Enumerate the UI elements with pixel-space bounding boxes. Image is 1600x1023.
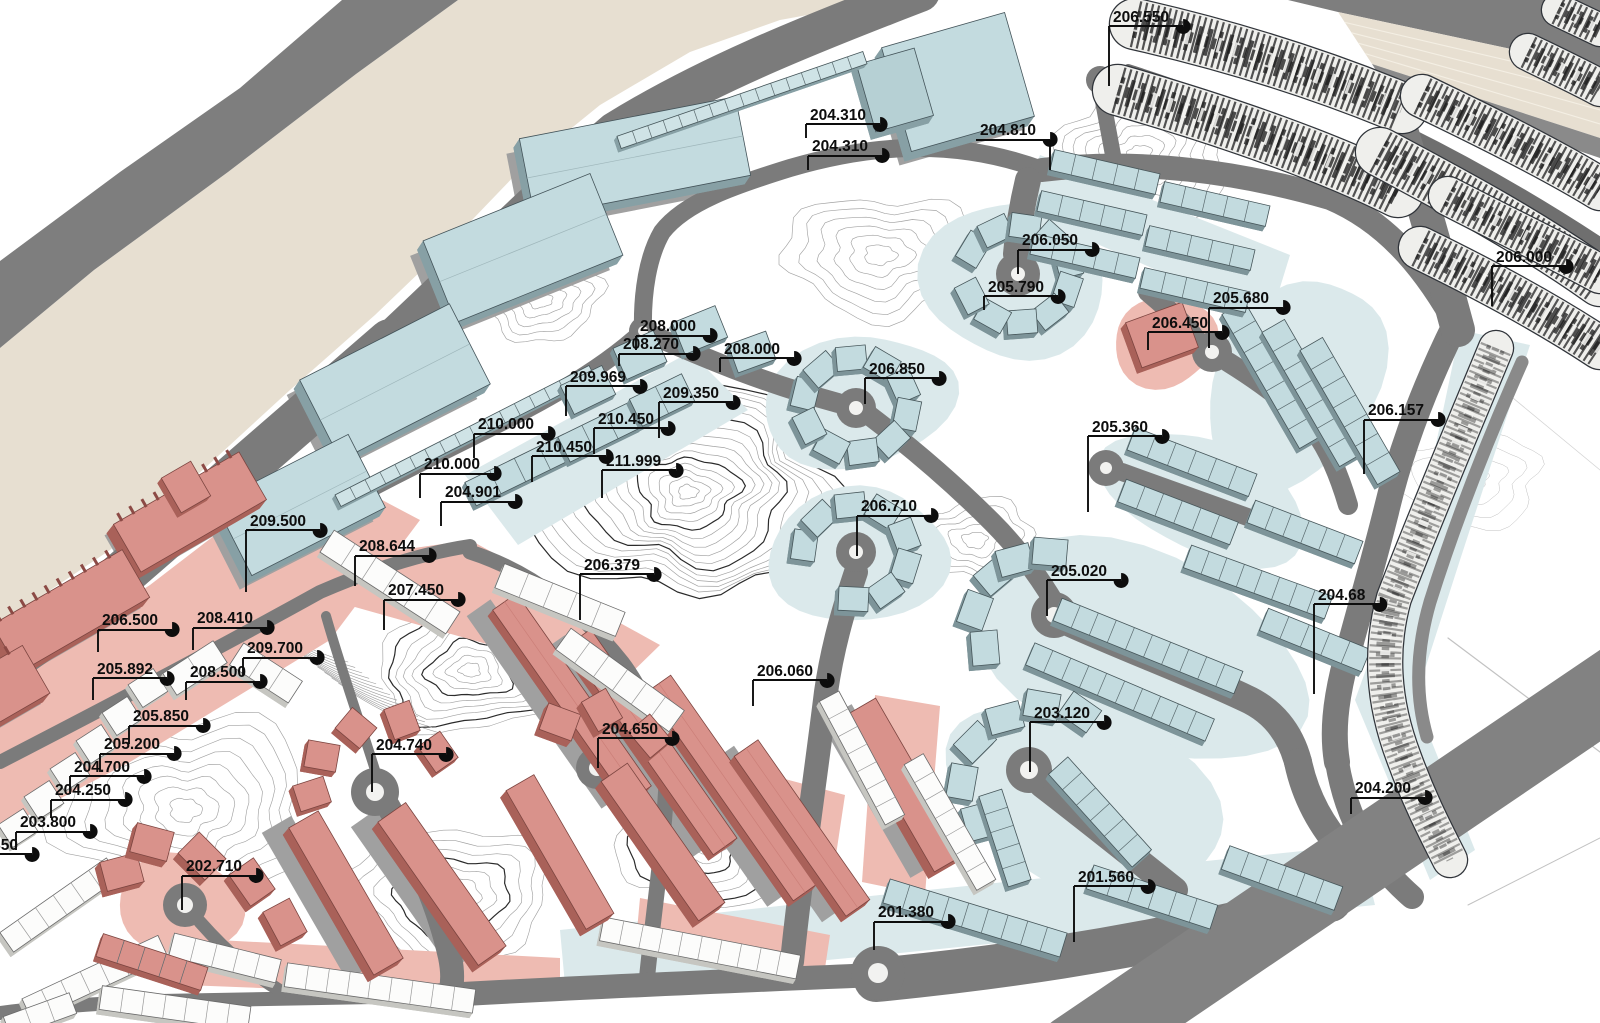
- svg-text:208.644: 208.644: [359, 538, 415, 555]
- svg-text:205.680: 205.680: [1213, 290, 1269, 307]
- svg-text:211.999: 211.999: [606, 453, 662, 470]
- svg-text:202.710: 202.710: [186, 858, 242, 875]
- svg-text:205.200: 205.200: [104, 736, 160, 753]
- svg-text:204.310: 204.310: [812, 138, 868, 155]
- svg-text:208.410: 208.410: [197, 610, 253, 627]
- svg-text:204.901: 204.901: [445, 484, 501, 501]
- svg-text:201.560: 201.560: [1078, 869, 1134, 886]
- svg-text:208.500: 208.500: [190, 664, 246, 681]
- svg-text:210.000: 210.000: [478, 416, 534, 433]
- svg-text:204.740: 204.740: [376, 737, 432, 754]
- svg-text:206.850: 206.850: [869, 361, 925, 378]
- svg-text:206.050: 206.050: [1022, 232, 1078, 249]
- svg-text:203.800: 203.800: [20, 814, 76, 831]
- svg-text:204.68: 204.68: [1318, 587, 1366, 604]
- svg-text:206.000: 206.000: [1496, 249, 1552, 266]
- svg-text:206.550: 206.550: [1113, 9, 1169, 26]
- svg-text:207.450: 207.450: [388, 582, 444, 599]
- svg-text:204.200: 204.200: [1355, 780, 1411, 797]
- svg-text:206.379: 206.379: [584, 557, 640, 574]
- svg-text:203.120: 203.120: [1034, 705, 1090, 722]
- svg-text:204.650: 204.650: [602, 721, 658, 738]
- svg-text:205.360: 205.360: [1092, 419, 1148, 436]
- svg-text:205.892: 205.892: [97, 661, 153, 678]
- svg-text:204.250: 204.250: [55, 782, 111, 799]
- svg-text:206.157: 206.157: [1368, 402, 1424, 419]
- svg-text:204.310: 204.310: [810, 107, 866, 124]
- svg-text:209.969: 209.969: [570, 369, 626, 386]
- svg-text:208.000: 208.000: [724, 341, 780, 358]
- svg-text:203.850: 203.850: [0, 837, 18, 854]
- svg-text:210.450: 210.450: [598, 411, 654, 428]
- svg-text:201.380: 201.380: [878, 904, 934, 921]
- svg-text:210.000: 210.000: [424, 456, 480, 473]
- svg-text:206.450: 206.450: [1152, 315, 1208, 332]
- svg-text:206.710: 206.710: [861, 498, 917, 515]
- svg-text:204.810: 204.810: [980, 122, 1036, 139]
- svg-text:208.000: 208.000: [640, 318, 696, 335]
- svg-text:206.500: 206.500: [102, 612, 158, 629]
- svg-text:204.700: 204.700: [74, 759, 130, 776]
- svg-text:209.700: 209.700: [247, 640, 303, 657]
- svg-text:210.450: 210.450: [536, 439, 592, 456]
- svg-text:205.020: 205.020: [1051, 563, 1107, 580]
- svg-text:208.270: 208.270: [623, 336, 679, 353]
- svg-text:209.350: 209.350: [663, 385, 719, 402]
- svg-text:209.500: 209.500: [250, 513, 306, 530]
- svg-text:205.790: 205.790: [988, 279, 1044, 296]
- svg-text:205.850: 205.850: [133, 708, 189, 725]
- svg-text:206.060: 206.060: [757, 663, 813, 680]
